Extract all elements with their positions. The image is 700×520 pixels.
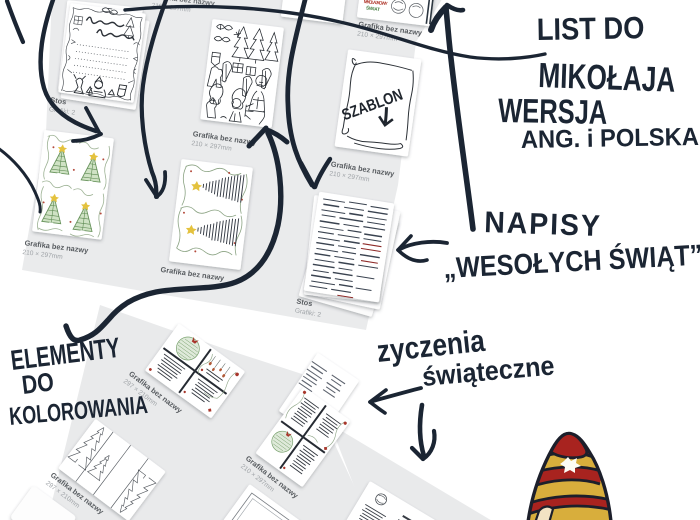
svg-text:ANG. i POLSKA.: ANG. i POLSKA.: [521, 123, 700, 154]
svg-text:LIST DO: LIST DO: [537, 12, 645, 48]
svg-text:DO: DO: [20, 367, 55, 400]
svg-text:NAPISY: NAPISY: [484, 206, 603, 243]
